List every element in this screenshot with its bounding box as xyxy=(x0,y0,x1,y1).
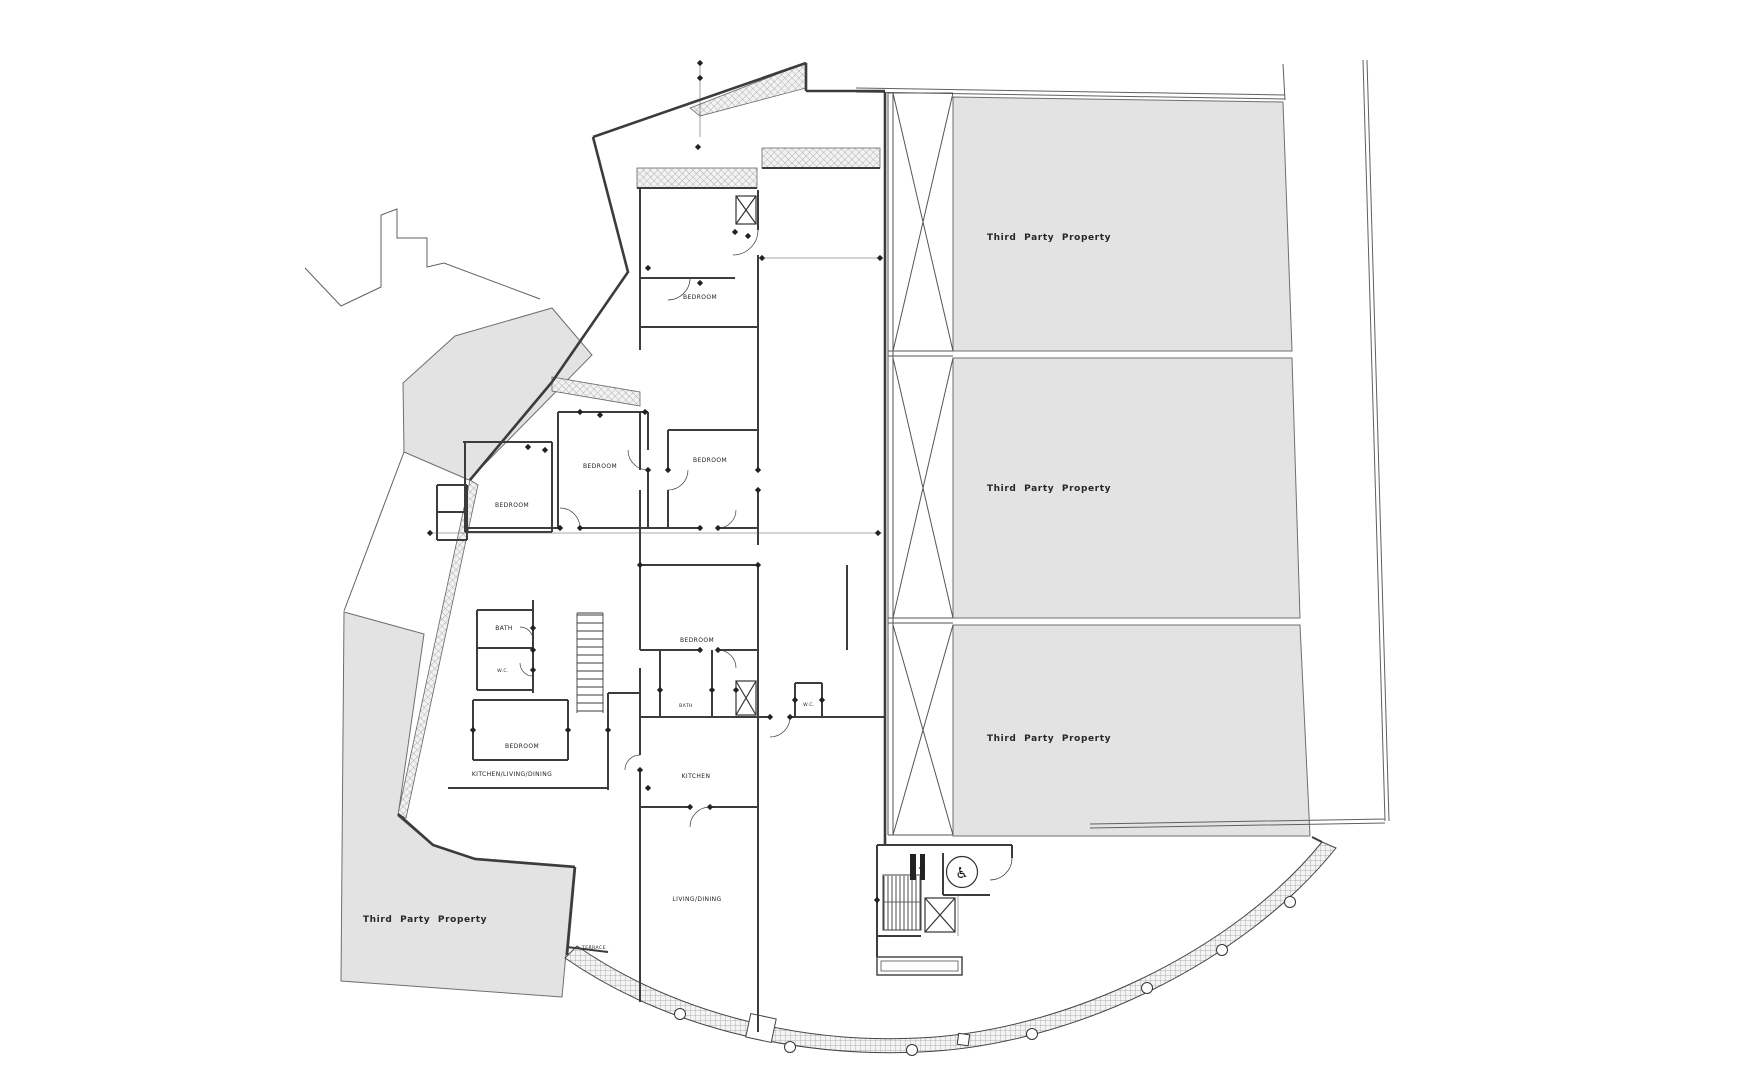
room-label-bedroom-5: BEDROOM xyxy=(680,637,714,644)
tick-mark xyxy=(525,444,531,450)
room-label-terrace: TERRACE xyxy=(581,945,606,951)
x-strip-frame xyxy=(888,93,953,835)
tick-mark xyxy=(695,144,701,150)
tick-mark xyxy=(715,647,721,653)
room-label-wc-2: W.C. xyxy=(803,702,815,708)
tick-mark xyxy=(657,687,663,693)
room-label-living-dining: LIVING/DINING xyxy=(672,896,721,903)
tick-mark xyxy=(787,714,793,720)
tick-mark xyxy=(687,804,693,810)
elevator-shaft-north-icon xyxy=(736,196,756,224)
room-label-bedroom-6: BEDROOM xyxy=(505,743,539,750)
hatch-band-north-right xyxy=(762,148,880,168)
parcel-third-party-southwest xyxy=(341,612,574,997)
room-label-bedroom-3: BEDROOM xyxy=(693,457,727,464)
parcel-label-right-bottom: Third Party Property xyxy=(987,734,1111,744)
elevator-shafts xyxy=(736,196,955,932)
boundary-left-connector xyxy=(344,452,404,611)
tick-mark xyxy=(577,525,583,531)
tick-mark xyxy=(707,804,713,810)
tick-mark xyxy=(697,75,703,81)
parcel-label-right-top: Third Party Property xyxy=(987,233,1111,243)
tick-mark xyxy=(759,255,765,261)
tick-mark xyxy=(792,697,798,703)
tick-mark xyxy=(819,697,825,703)
tick-mark xyxy=(755,487,761,493)
elevator-shaft-mid-icon xyxy=(736,681,756,715)
tick-mark xyxy=(697,60,703,66)
parcel-third-party-right-top xyxy=(953,97,1292,351)
x-strip-braces xyxy=(893,93,953,835)
room-label-kitchen: KITCHEN xyxy=(682,773,711,780)
hatch-band-north-left xyxy=(637,168,757,188)
tick-mark xyxy=(577,409,583,415)
third-party-parcels xyxy=(341,97,1310,997)
tick-mark xyxy=(427,530,433,536)
room-label-bath-2: BATH xyxy=(679,703,693,709)
tick-mark xyxy=(565,727,571,733)
accessible-wc-icon: ♿ xyxy=(955,864,968,882)
dimension-lines xyxy=(432,60,958,936)
room-label-bath-1: BATH xyxy=(495,625,513,632)
tick-mark xyxy=(645,467,651,473)
parcel-third-party-right-bottom xyxy=(953,625,1310,836)
boundary-left-jagged xyxy=(305,209,540,306)
planter-box xyxy=(877,957,962,975)
tick-mark xyxy=(637,562,643,568)
elevator-shaft-core-icon xyxy=(925,898,955,932)
tick-mark xyxy=(715,525,721,531)
parcel-label-southwest: Third Party Property xyxy=(363,915,487,925)
tick-mark xyxy=(755,562,761,568)
tick-mark xyxy=(697,280,703,286)
tick-mark xyxy=(697,647,703,653)
tick-mark xyxy=(755,467,761,473)
tick-mark xyxy=(645,265,651,271)
hatch-parapet-triangle xyxy=(690,63,806,116)
tick-mark xyxy=(605,727,611,733)
floor-plan-page: ♿ Third Party Property Third Party Prope… xyxy=(0,0,1755,1080)
room-label-kitchen-living-dining: KITCHEN/LIVING/DINING xyxy=(472,771,552,778)
tick-mark xyxy=(637,767,643,773)
tick-mark xyxy=(732,229,738,235)
room-label-bedroom-1: BEDROOM xyxy=(683,294,717,301)
tick-mark xyxy=(645,785,651,791)
tick-mark xyxy=(767,714,773,720)
tick-mark xyxy=(665,467,671,473)
tick-mark xyxy=(877,255,883,261)
stairs-southwest xyxy=(577,613,603,713)
room-label-bedroom-2: BEDROOM xyxy=(583,463,617,470)
parcel-label-right-middle: Third Party Property xyxy=(987,484,1111,494)
stairs-core xyxy=(883,875,921,930)
door-fin-1 xyxy=(910,854,916,880)
hatch-diagonal-strip xyxy=(552,377,640,406)
room-label-wc-1: W.C. xyxy=(497,668,509,674)
tick-mark xyxy=(697,525,703,531)
room-label-bedroom-4: BEDROOM xyxy=(495,502,529,509)
tick-mark xyxy=(470,727,476,733)
tick-mark xyxy=(542,447,548,453)
facade-door-notch xyxy=(746,1014,776,1043)
tick-mark xyxy=(709,687,715,693)
tick-mark xyxy=(530,667,536,673)
lightwell-x-strip xyxy=(888,93,953,835)
tick-mark xyxy=(874,897,880,903)
tick-mark xyxy=(745,233,751,239)
tick-mark xyxy=(530,625,536,631)
floor-plan-drawing: ♿ Third Party Property Third Party Prope… xyxy=(0,0,1755,1080)
parcel-gray-northwest-quad xyxy=(403,308,592,480)
tick-mark xyxy=(875,530,881,536)
